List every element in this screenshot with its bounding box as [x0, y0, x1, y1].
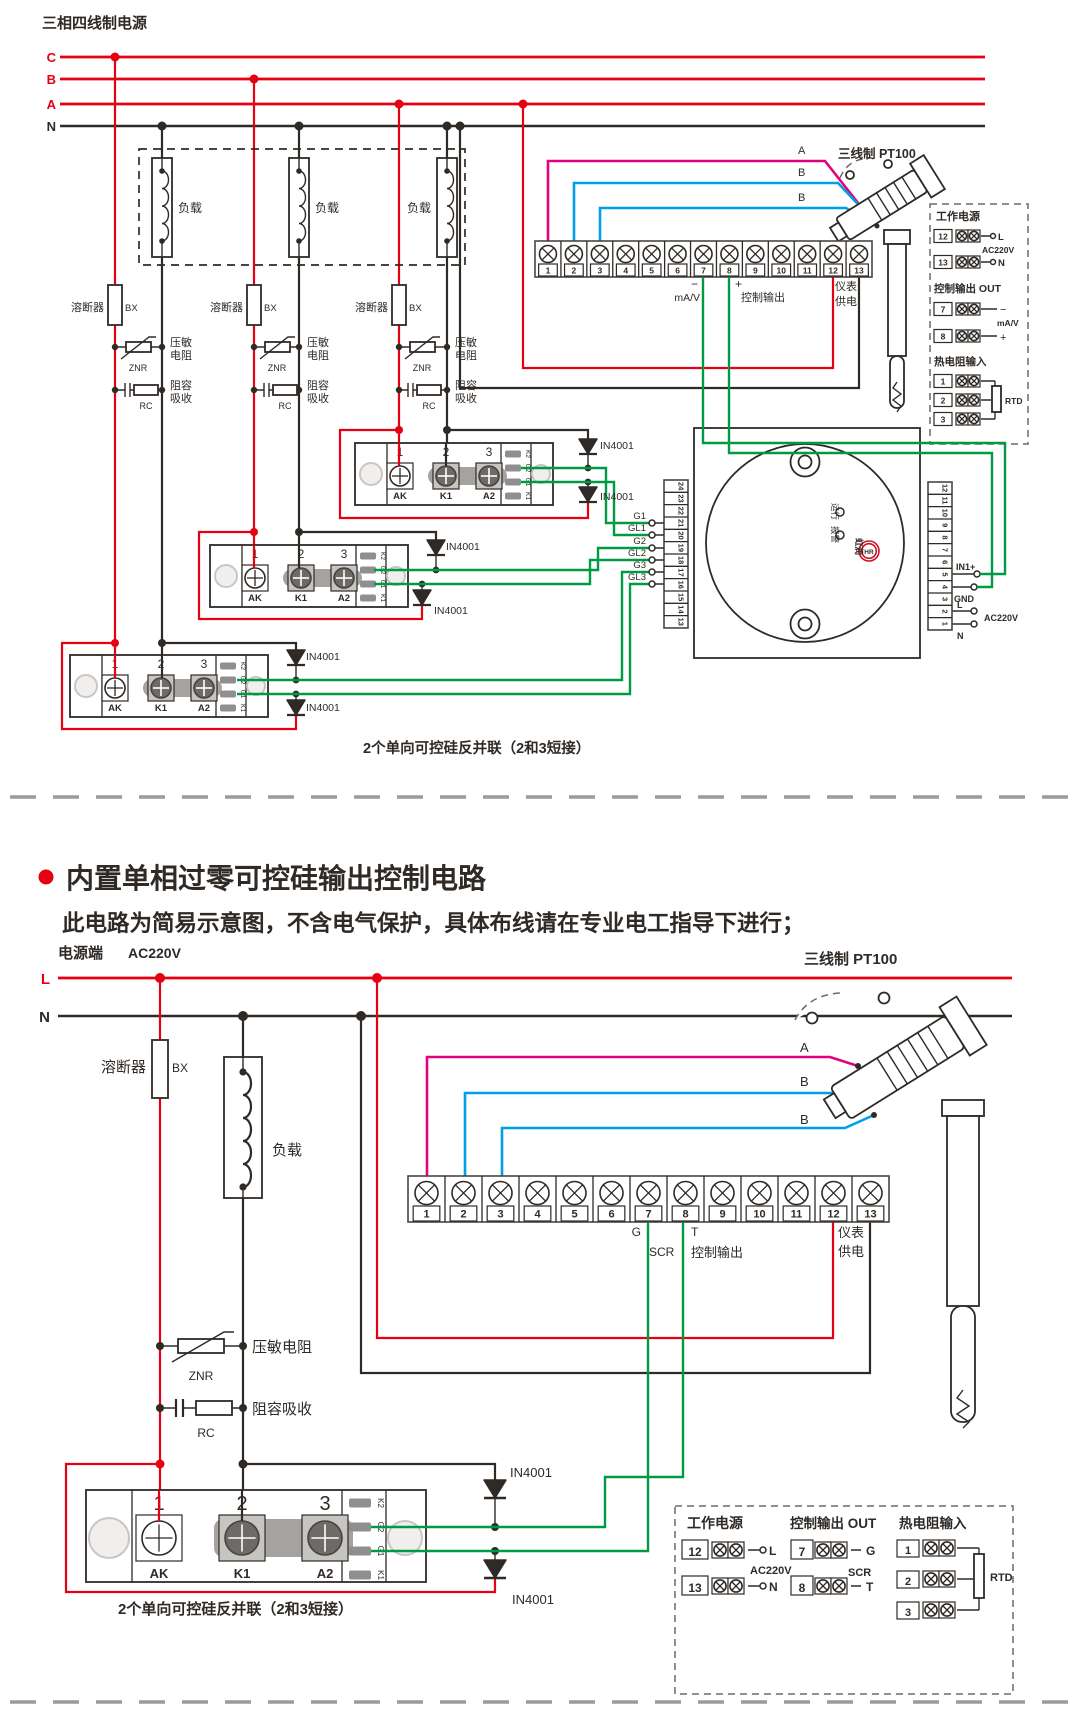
scr-module-main: 1AK2K13A2K2G2G1K1 — [86, 1490, 426, 1582]
label-ctl-n: N — [957, 631, 964, 641]
panel-top-rtd: RTD — [1005, 396, 1022, 406]
branch-module2 — [299, 532, 436, 540]
caption-bottom: 2个单向可控硅反并联（2和3短接） — [118, 1600, 353, 1618]
module-terminal-name: A2 — [198, 703, 210, 714]
label-diode-m2b: IN4001 — [434, 605, 468, 617]
label-control-out: 控制输出 — [741, 290, 785, 304]
top-title: 三相四线制电源 — [42, 14, 147, 32]
label-alarm: 报警 — [830, 526, 840, 544]
module-terminal-number: 1 — [252, 547, 259, 561]
module-terminal-name: A2 — [317, 1566, 334, 1581]
varistor-bottom — [172, 1332, 234, 1362]
section-heading: 内置单相过零可控硅输出控制电路 — [66, 862, 487, 894]
label-in1: IN1+ — [956, 562, 975, 572]
panel-top-r2: 2 — [941, 396, 946, 406]
module-gate-slot — [220, 677, 236, 684]
junction-dots — [111, 53, 880, 1556]
label-znr-bottom-code: ZNR — [189, 1369, 214, 1383]
controller-terminal-number: 19 — [677, 544, 686, 552]
label-znr-bottom: 压敏电阻 — [252, 1339, 312, 1356]
terminal-number: 3 — [597, 266, 602, 276]
wire-sensor-a-bot — [427, 1057, 858, 1176]
label-ctl-ac: AC220V — [984, 613, 1018, 623]
controller-terminal-number: 1 — [941, 622, 950, 626]
panel-top-8: 8 — [941, 332, 946, 342]
label-varistor-3a: 压敏 — [455, 335, 477, 349]
terminal-number: 12 — [827, 1209, 839, 1221]
label-meter-1: 仪表 — [835, 279, 857, 293]
panel-bot-7: 7 — [799, 1545, 806, 1559]
terminal-number: 8 — [727, 266, 732, 276]
diagram-canvas: 1234567891011121312345678910111213242322… — [0, 0, 1080, 1710]
controller-terminal-number: 14 — [677, 605, 686, 614]
label-sensor-top: 三线制 PT100 — [838, 146, 916, 161]
module-roundel — [75, 675, 97, 697]
caption-top: 2个单向可控硅反并联（2和3短接） — [363, 739, 590, 757]
label-plus: + — [735, 277, 742, 291]
load-2 — [289, 158, 309, 257]
controller-terminal-number: 15 — [677, 593, 686, 601]
panel-top-out-title: 控制输出 OUT — [934, 282, 1002, 295]
module-gate-label: K1 — [524, 492, 531, 500]
panel-top-r3: 3 — [941, 415, 946, 425]
module-terminal-name: A2 — [483, 491, 495, 502]
panel-bot-r1: 1 — [905, 1545, 911, 1557]
module-gate-slot — [220, 705, 236, 712]
label-varistor-2a: 压敏 — [307, 335, 329, 349]
controller-terminal-number: 2 — [941, 609, 950, 613]
controller-terminal-number: 22 — [677, 507, 686, 515]
scr-module-1: 1AK2K13A2K2G2G1K1 — [70, 655, 268, 717]
terminal-number: 11 — [791, 1209, 803, 1221]
label-brand: 虹润 — [854, 538, 864, 556]
terminal-number: 10 — [777, 266, 787, 276]
label-znr-3: ZNR — [413, 363, 432, 373]
terminal-number: 13 — [854, 266, 864, 276]
label-control-out-bot: 控制输出 — [691, 1245, 743, 1260]
module-gate-label: K2 — [524, 450, 531, 458]
label-rc-bottom: 阻容吸收 — [252, 1401, 312, 1418]
terminal-number: 7 — [645, 1209, 651, 1221]
label-g1: G1 — [633, 511, 646, 522]
label-diode-m1a: IN4001 — [306, 651, 340, 663]
module-gate-slot — [505, 493, 521, 500]
label-load-3: 负载 — [407, 201, 431, 215]
module-roundel — [215, 565, 237, 587]
fuse-1 — [108, 285, 122, 325]
panel-bot-n: N — [769, 1580, 778, 1594]
fuse-2 — [247, 285, 261, 325]
label-wire-b2-bot: B — [800, 1112, 809, 1127]
terminal-strip-bottom: 12345678910111213 — [408, 1176, 889, 1222]
terminal-number: 1 — [546, 266, 551, 276]
label-varistor-2b: 电阻 — [307, 349, 329, 362]
label-neutral: N — [47, 119, 56, 134]
label-scr-bot: SCR — [649, 1245, 675, 1259]
label-sensor-bottom: 三线制 PT100 — [804, 950, 897, 968]
panel-bot-12: 12 — [688, 1545, 702, 1559]
label-mav: mA/V — [674, 292, 700, 304]
terminal-number: 9 — [753, 266, 758, 276]
controller-terminal-number: 10 — [941, 509, 950, 517]
label-rcab-2b: 吸收 — [307, 391, 329, 405]
module-terminal-name: AK — [108, 703, 122, 714]
scr-gate-wire-bot-1 — [371, 1222, 683, 1527]
panel-top-13: 13 — [938, 258, 948, 268]
label-bx-bottom: BX — [172, 1061, 188, 1075]
label-meter-1-bot: 仪表 — [838, 1225, 864, 1240]
module-terminal-number: 3 — [341, 547, 348, 561]
controller-terminal-number: 8 — [941, 535, 950, 539]
panel-top-ac: AC220V — [982, 245, 1014, 255]
wire-sensor-b2-bot — [502, 1115, 874, 1176]
controller-left-terminals: 242322212019181716151413 — [664, 480, 688, 628]
wires-layer — [58, 53, 1012, 1593]
controller-terminal-number: 18 — [677, 556, 686, 564]
panel-top-plus: + — [1000, 332, 1006, 344]
controller-terminal-number: 7 — [941, 548, 950, 552]
panel-top-7: 7 — [941, 305, 946, 315]
controller-terminal-number: 20 — [677, 531, 686, 539]
module-gate-slot — [505, 479, 521, 486]
terminal-number: 5 — [571, 1209, 577, 1221]
terminal-number: 10 — [753, 1209, 765, 1221]
controller-terminal-number: 9 — [941, 523, 950, 527]
label-znr-1: ZNR — [129, 363, 148, 373]
panel-bot-r3: 3 — [905, 1607, 911, 1619]
module-gate-slot — [360, 581, 376, 588]
label-wire-b1-bot: B — [800, 1074, 809, 1089]
panel-top-12: 12 — [938, 232, 948, 242]
varistor-1 — [121, 337, 156, 359]
panel-top-rtd-title: 热电阻输入 — [934, 355, 987, 368]
panel-bot-ac: AC220V — [750, 1565, 792, 1577]
controller-terminal-number: 11 — [941, 497, 950, 505]
module-terminal-number: 1 — [397, 445, 404, 459]
module-gate-label: K2 — [379, 552, 386, 560]
label-load-bottom: 负载 — [272, 1142, 302, 1159]
label-phase-c: C — [47, 50, 57, 65]
label-varistor-3b: 电阻 — [455, 349, 477, 362]
module-gate-slot — [349, 1571, 371, 1580]
wire-sensor-b1 — [574, 183, 870, 241]
load-bottom — [224, 1057, 262, 1198]
panel-bot-8: 8 — [799, 1581, 806, 1595]
label-line-l: L — [41, 971, 50, 988]
rc-2 — [264, 383, 297, 397]
varistor-2 — [260, 337, 295, 359]
branch-module-main — [243, 1464, 495, 1480]
terminal-number: 2 — [572, 266, 577, 276]
panel-bot-t: T — [866, 1580, 874, 1594]
label-diode-m2a: IN4001 — [446, 541, 480, 553]
label-wire-b1: B — [798, 167, 805, 179]
module-terminal-number: 3 — [201, 657, 208, 671]
panel-bot-g: G — [866, 1544, 875, 1558]
label-g2: G2 — [633, 536, 646, 547]
module-gate-slot — [220, 663, 236, 670]
label-wire-a-bot: A — [800, 1040, 809, 1055]
label-brand-logo: HR — [864, 549, 874, 556]
panel-bot-out-title: 控制输出 OUT — [790, 1515, 877, 1531]
rc-3 — [408, 383, 441, 397]
label-diode-m3b: IN4001 — [600, 491, 634, 503]
branch-module3 — [447, 430, 588, 439]
terminal-number: 9 — [719, 1209, 725, 1221]
label-fuse-1: 溶断器 — [71, 300, 104, 314]
panel-bot-rtd-title: 热电阻输入 — [899, 1515, 967, 1531]
wire-meter-live-bot — [377, 978, 833, 1338]
module-gate-slot — [505, 465, 521, 472]
label-diode-bot-a: IN4001 — [510, 1465, 552, 1480]
module-terminal-name: K1 — [295, 593, 308, 604]
panel-bot-scr: SCR — [848, 1567, 871, 1579]
wiring-diagram-page: 1234567891011121312345678910111213242322… — [0, 0, 1080, 1710]
terminal-number: 12 — [828, 266, 838, 276]
panel-bot-power-title: 工作电源 — [687, 1515, 743, 1531]
label-bx-2: BX — [264, 303, 277, 314]
panel-top-l: L — [998, 232, 1004, 243]
controller-terminal-number: 24 — [677, 482, 686, 491]
terminal-number: 3 — [497, 1209, 503, 1221]
module-gate-label: K1 — [376, 1570, 385, 1580]
terminal-number: 11 — [803, 266, 812, 276]
controller-terminal-number: 13 — [677, 618, 686, 626]
label-phase-a: A — [47, 97, 57, 112]
label-rc-bottom-code: RC — [197, 1426, 215, 1440]
label-load-1: 负载 — [178, 201, 202, 215]
label-rcab-3a: 阻容 — [455, 378, 477, 392]
module-gate-label: K1 — [379, 594, 386, 602]
module-gate-slot — [360, 567, 376, 574]
terminal-number: 7 — [701, 266, 706, 276]
label-wire-b2: B — [798, 192, 805, 204]
labels-layer: 三相四线制电源 C B A N 负载 负载 负载 溶断器 溶断器 溶断器 BX … — [39, 14, 1023, 1619]
terminal-number: 4 — [623, 266, 628, 276]
label-ctl-l: L — [957, 600, 963, 610]
rc-1 — [125, 383, 158, 397]
panel-top-minus: − — [1000, 304, 1006, 316]
panel-top-mav: mA/V — [997, 318, 1019, 328]
label-varistor-1a: 压敏 — [170, 335, 192, 349]
label-diode-bot-b: IN4001 — [512, 1592, 554, 1607]
label-g3: G3 — [633, 560, 646, 571]
module-terminal-name: K1 — [155, 703, 168, 714]
heading-bullet — [39, 870, 54, 885]
panel-bot-rtd: RTD — [990, 1572, 1013, 1584]
label-rc-2: RC — [279, 401, 292, 411]
controller-terminal-number: 21 — [677, 519, 686, 527]
scr-module-3: 1AK2K13A2K2G2G1K1 — [355, 443, 553, 505]
controller-terminal-number: 5 — [941, 572, 950, 576]
label-znr-2: ZNR — [268, 363, 287, 373]
panel-bot-13: 13 — [688, 1581, 702, 1595]
label-run: 运行 — [830, 503, 840, 521]
module-gate-label: K2 — [239, 662, 246, 670]
controller-right-terminals: 121110987654321 — [928, 482, 952, 630]
wire-sensor-b1-bot — [465, 1091, 867, 1176]
load-3 — [437, 158, 457, 257]
controller-terminal-number: 6 — [941, 560, 950, 564]
terminal-number: 1 — [423, 1209, 429, 1221]
controller-terminal-number: 23 — [677, 494, 686, 502]
label-rcab-3b: 吸收 — [455, 391, 477, 405]
module-terminal-name: A2 — [338, 593, 350, 604]
controller-terminal-number: 12 — [941, 484, 950, 492]
terminal-number: 5 — [649, 266, 654, 276]
label-varistor-1b: 电阻 — [170, 349, 192, 362]
label-g-bot: G — [632, 1225, 641, 1239]
label-rc-3: RC — [423, 401, 436, 411]
terminal-number: 2 — [460, 1209, 466, 1221]
fuse-3 — [392, 285, 406, 325]
module-gate-slot — [349, 1547, 371, 1556]
label-diode-m3a: IN4001 — [600, 440, 634, 452]
module-gate-slot — [360, 553, 376, 560]
label-t-bot: T — [691, 1225, 699, 1239]
module-terminal-number: 3 — [319, 1493, 330, 1515]
controller-terminal-number: 17 — [677, 568, 686, 576]
terminal-number: 6 — [608, 1209, 614, 1221]
fuse-bottom — [152, 1040, 168, 1098]
module-terminal-number: 3 — [486, 445, 493, 459]
wire-sensor-a — [548, 161, 862, 241]
label-rcab-2a: 阻容 — [307, 378, 329, 392]
panel-bot-r2: 2 — [905, 1576, 911, 1588]
section-note: 此电路为简易示意图，不含电气保护，具体布线请在专业电工指导下进行； — [62, 910, 805, 936]
module-terminal-name: AK — [248, 593, 262, 604]
panel-bottom — [675, 1506, 1013, 1694]
label-load-2: 负载 — [315, 201, 339, 215]
module-roundel — [89, 1518, 129, 1558]
label-rcab-1b: 吸收 — [170, 391, 192, 405]
label-gl2: GL2 — [628, 548, 646, 559]
terminal-number: 8 — [682, 1209, 688, 1221]
controller-terminal-number: 3 — [941, 597, 950, 601]
gate-wire-gl2 — [374, 560, 649, 584]
label-wire-a: A — [798, 145, 806, 157]
label-bx-1: BX — [125, 303, 138, 314]
branch-module1 — [162, 643, 296, 650]
label-diode-m1b: IN4001 — [306, 702, 340, 714]
panel-top-power-title: 工作电源 — [936, 209, 980, 223]
label-rc-1: RC — [140, 401, 153, 411]
terminal-number: 4 — [534, 1209, 541, 1221]
scr-module-2: 1AK2K13A2K2G2G1K1 — [210, 545, 408, 607]
label-fuse-bottom: 溶断器 — [101, 1059, 146, 1076]
controller-terminal-number: 16 — [677, 581, 686, 589]
label-line-n: N — [39, 1009, 50, 1026]
module-gate-label: K1 — [239, 704, 246, 712]
module-roundel — [360, 463, 382, 485]
label-minus: − — [691, 277, 698, 291]
label-source: 电源端 — [58, 944, 103, 962]
label-fuse-2: 溶断器 — [210, 300, 243, 314]
terminal-number: 13 — [864, 1209, 876, 1221]
varistor-3 — [405, 337, 440, 359]
load-1 — [152, 158, 172, 257]
module-gate-label: K2 — [376, 1498, 385, 1508]
label-fuse-3: 溶断器 — [355, 300, 388, 314]
label-rcab-1a: 阻容 — [170, 378, 192, 392]
module-gate-slot — [349, 1499, 371, 1508]
label-gl3: GL3 — [628, 572, 646, 583]
wire-meter-live — [523, 104, 833, 368]
module-gate-slot — [505, 451, 521, 458]
module-gate-slot — [349, 1523, 371, 1532]
module-gate-slot — [220, 691, 236, 698]
panel-top-n: N — [998, 258, 1005, 269]
module-terminal-name: AK — [150, 1566, 169, 1581]
label-bx-3: BX — [409, 303, 422, 314]
label-meter-2: 供电 — [835, 294, 857, 308]
module-terminal-name: K1 — [234, 1566, 251, 1581]
module-gate-slot — [360, 595, 376, 602]
terminal-number: 6 — [675, 266, 680, 276]
label-meter-2-bot: 供电 — [838, 1244, 864, 1259]
label-source-voltage: AC220V — [128, 945, 182, 961]
module-terminal-name: AK — [393, 491, 407, 502]
label-phase-b: B — [47, 72, 56, 87]
label-gl1: GL1 — [628, 523, 646, 534]
terminal-strip-top: 12345678910111213 — [535, 241, 872, 277]
module-terminal-name: K1 — [440, 491, 453, 502]
panel-bot-l: L — [769, 1544, 776, 1558]
panel-top-r1: 1 — [941, 377, 946, 387]
